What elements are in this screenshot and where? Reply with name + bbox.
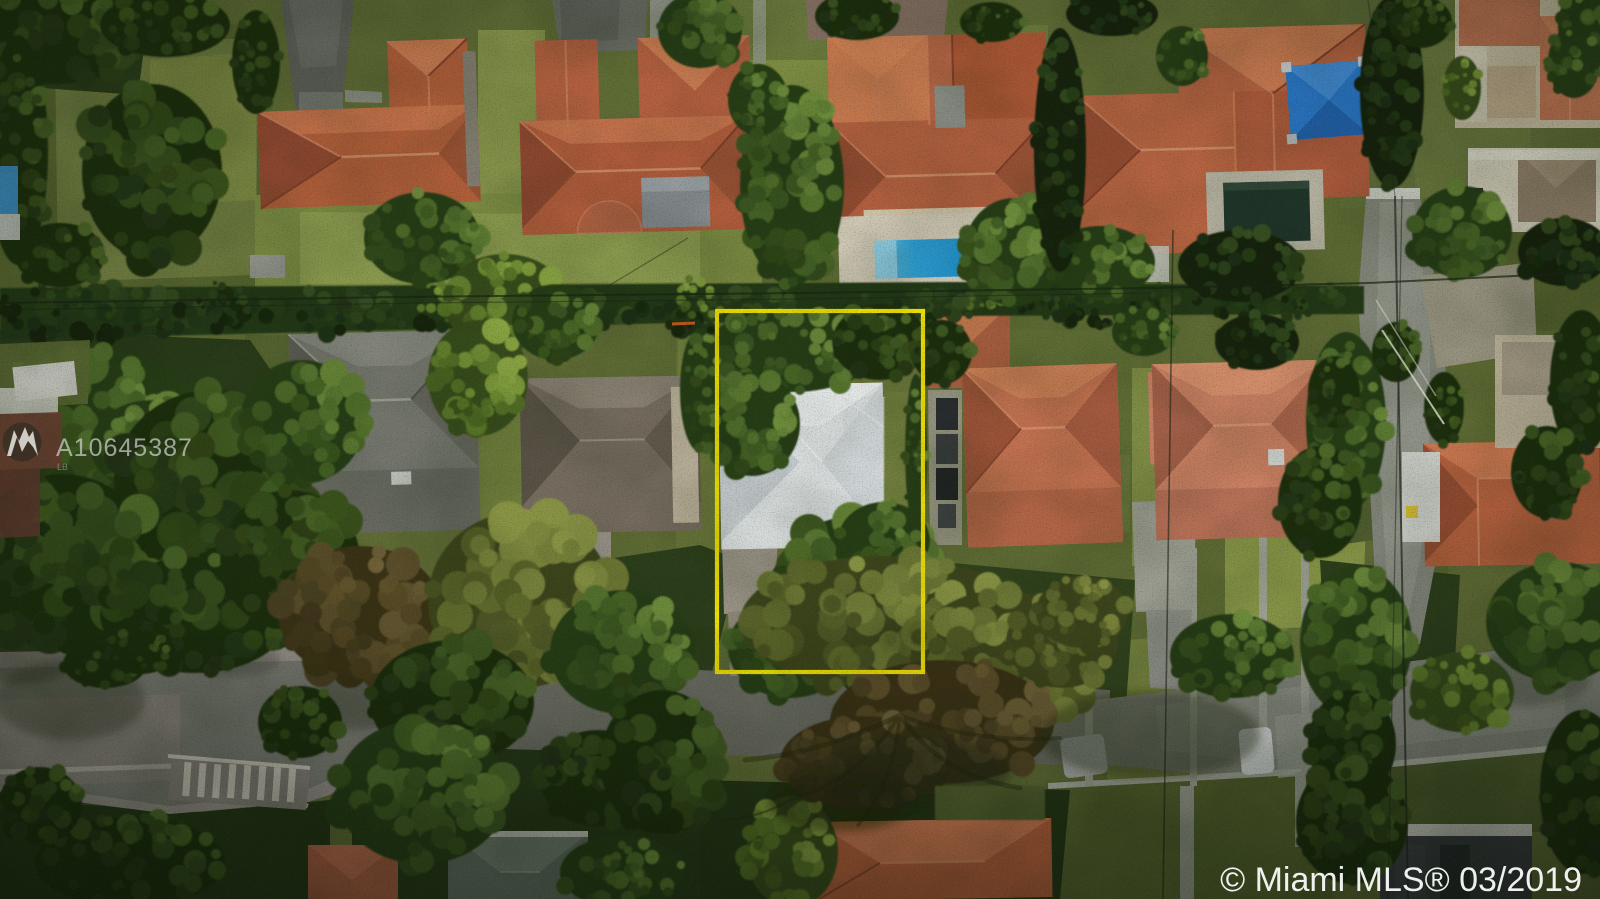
svg-text:A10645387: A10645387 xyxy=(56,434,193,462)
svg-text:LB: LB xyxy=(57,462,68,472)
svg-text:© Miami MLS® 03/2019: © Miami MLS® 03/2019 xyxy=(1220,861,1582,899)
